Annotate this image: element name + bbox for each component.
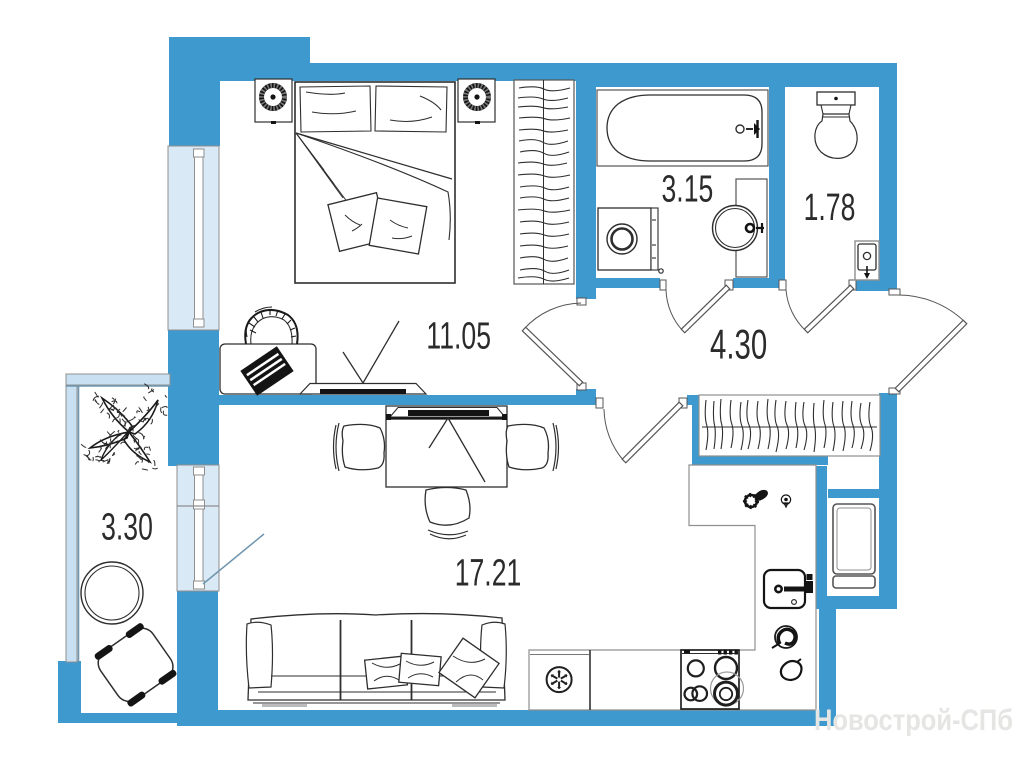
svg-text:3.15: 3.15 [662,167,714,210]
svg-text:11.05: 11.05 [426,314,491,357]
svg-text:3.30: 3.30 [101,505,153,548]
svg-text:17.21: 17.21 [455,551,522,594]
svg-text:4.30: 4.30 [710,320,767,368]
svg-text:Новострой-СПб: Новострой-СПб [814,703,1013,736]
svg-text:1.78: 1.78 [804,185,856,228]
